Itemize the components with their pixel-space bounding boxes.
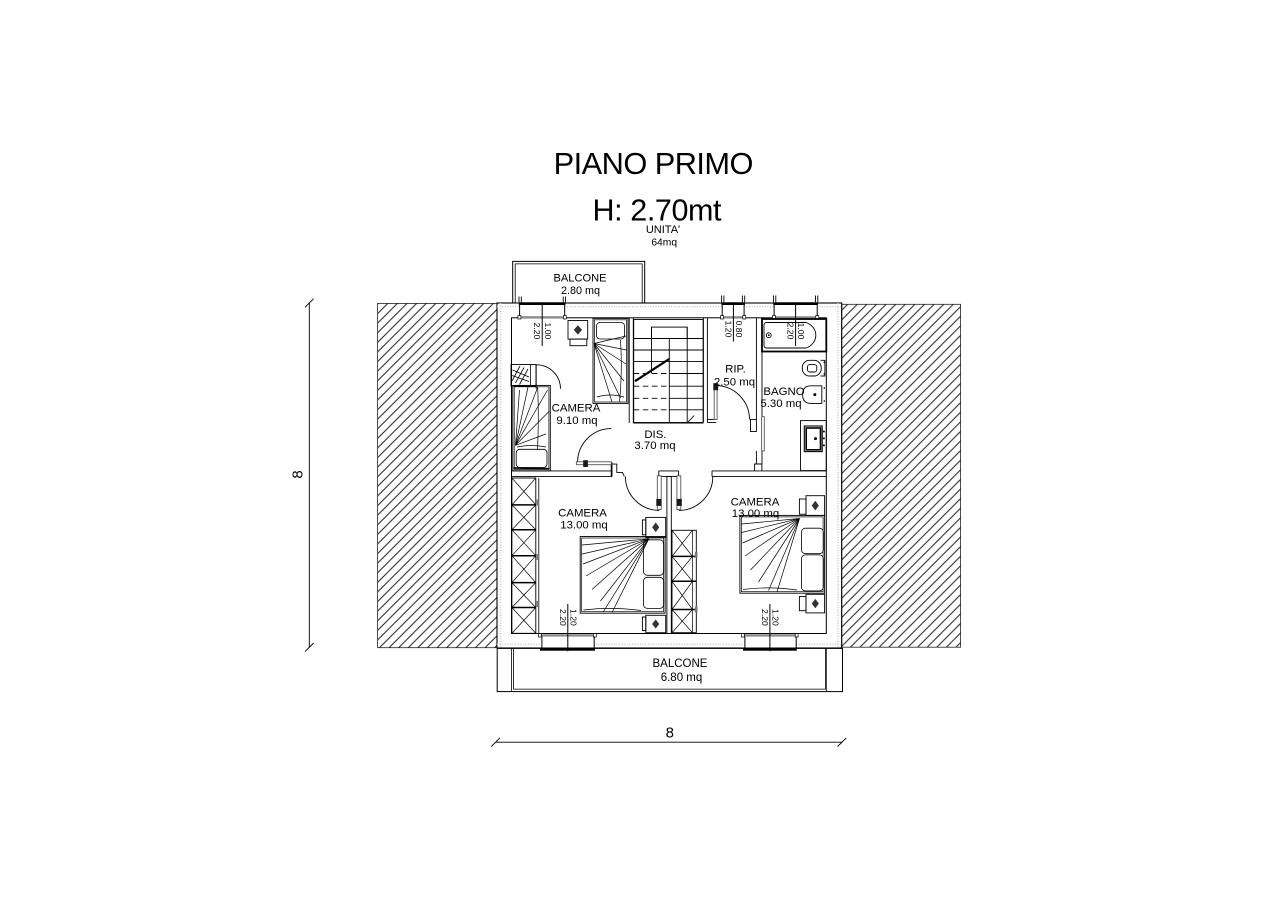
svg-text:64mq: 64mq bbox=[651, 238, 677, 249]
svg-text:2.80 mq: 2.80 mq bbox=[561, 285, 600, 297]
svg-text:H: 2.70mt: H: 2.70mt bbox=[592, 193, 722, 227]
svg-text:9.10 mq: 9.10 mq bbox=[556, 415, 597, 427]
svg-text:PIANO PRIMO: PIANO PRIMO bbox=[554, 146, 753, 181]
svg-text:RIP.: RIP. bbox=[725, 364, 746, 376]
svg-text:CAMERA: CAMERA bbox=[558, 508, 607, 520]
svg-text:2.20: 2.20 bbox=[532, 323, 542, 340]
svg-text:CAMERA: CAMERA bbox=[552, 403, 601, 415]
svg-text:13.00 mq: 13.00 mq bbox=[732, 508, 780, 520]
svg-text:3.70 mq: 3.70 mq bbox=[634, 440, 675, 452]
svg-text:BALCONE: BALCONE bbox=[553, 273, 606, 285]
svg-text:5.30 mq: 5.30 mq bbox=[760, 398, 801, 410]
svg-text:6.80 mq: 6.80 mq bbox=[661, 672, 703, 684]
svg-text:BALCONE: BALCONE bbox=[653, 658, 708, 670]
svg-text:8: 8 bbox=[666, 725, 674, 742]
svg-text:1.20: 1.20 bbox=[723, 321, 733, 338]
svg-text:1.00: 1.00 bbox=[796, 323, 806, 340]
svg-text:BAGNO: BAGNO bbox=[763, 386, 804, 398]
svg-text:13.00 mq: 13.00 mq bbox=[560, 520, 608, 532]
svg-text:2.20: 2.20 bbox=[760, 609, 770, 626]
svg-text:8: 8 bbox=[290, 470, 307, 478]
svg-text:2.20: 2.20 bbox=[786, 323, 796, 340]
svg-text:1.20: 1.20 bbox=[568, 609, 578, 626]
svg-text:2.50 mq: 2.50 mq bbox=[714, 377, 755, 389]
svg-text:CAMERA: CAMERA bbox=[731, 497, 780, 509]
svg-text:1.00: 1.00 bbox=[543, 323, 553, 340]
svg-text:2.20: 2.20 bbox=[558, 609, 568, 626]
svg-text:0.80: 0.80 bbox=[734, 321, 744, 338]
svg-text:UNITA': UNITA' bbox=[646, 224, 680, 236]
svg-text:1.20: 1.20 bbox=[771, 609, 781, 626]
